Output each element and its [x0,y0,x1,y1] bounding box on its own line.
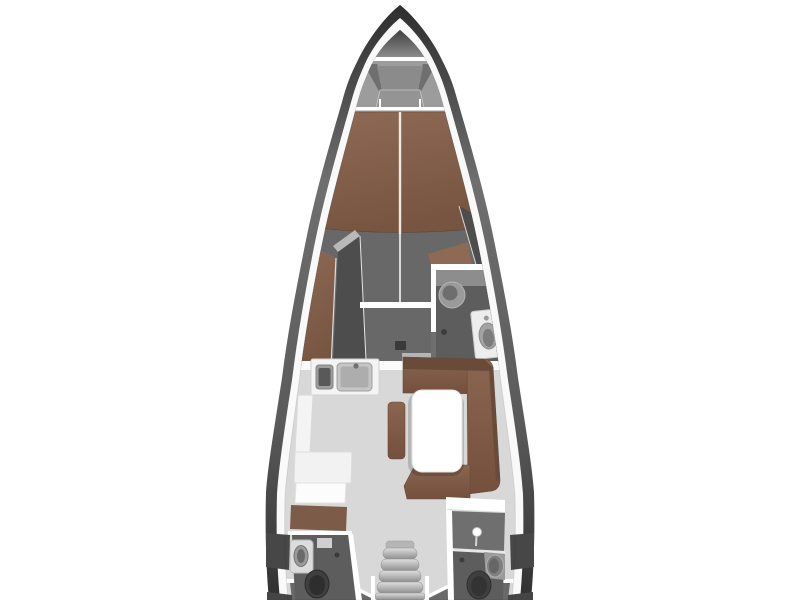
stair-step-2 [381,559,419,571]
stair-step-5 [375,593,425,600]
salon-ottoman [388,402,405,459]
stair-step-1 [383,548,417,559]
port-aft-tray [317,538,332,548]
galley-cabinet [294,452,352,483]
hull-locker-port-1 [266,533,290,570]
floor-hatch [395,341,406,350]
shower-stem [476,536,477,546]
floorplan-canvas [0,0,800,600]
galley-faucet [353,363,358,368]
salon-table [412,390,462,472]
galley-counter-strip [295,395,313,452]
starboard-aft-drain [460,558,465,563]
starboard-aft-toilet-bowl [471,576,487,596]
bow-well [377,66,423,92]
starboard-aft-sink-basin [489,559,499,574]
forward-head-door [431,332,436,358]
port-aft-wall [288,531,352,535]
port-aft-sink-basin [297,549,305,563]
hull-locker-starboard-1 [510,533,534,570]
port-aft-drain [335,553,340,558]
yacht-floorplan [0,0,800,600]
settee-backrest-top [403,357,493,371]
bow-seat [376,90,424,108]
galley-cabinet-lower [295,483,346,503]
stair-step-4 [377,582,423,593]
berth-centerline [399,112,401,234]
port-aft-head [290,534,362,600]
deck-tick-port [379,99,381,108]
forward-head-drain [441,329,447,335]
cabin-bulkhead [360,302,438,308]
galley-sink-small-basin [319,368,331,386]
forward-head-sink-basin [443,286,458,301]
shower-head [473,528,482,537]
stair-step-3 [379,571,421,583]
stair-rail-starboard [425,576,429,600]
cabin-centerline [399,234,401,304]
stair-rail-port [371,576,375,600]
interior [280,0,520,600]
deck-tick-starboard [419,99,421,108]
galley-sink-large-basin [341,367,369,388]
port-aft-toilet-bowl [309,575,325,595]
port-aft-counter [290,505,347,531]
